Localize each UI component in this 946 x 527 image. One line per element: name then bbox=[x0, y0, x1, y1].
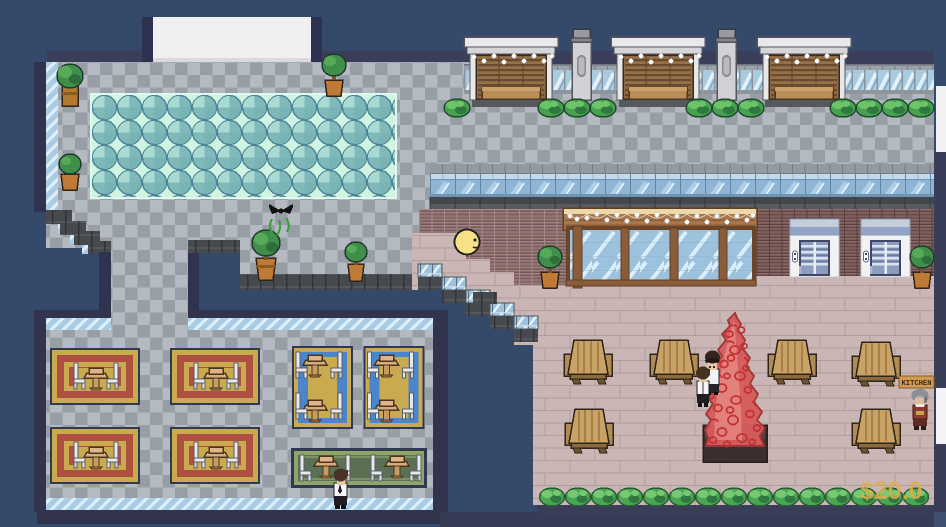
svg-text:KITCHEN: KITCHEN bbox=[902, 380, 932, 388]
svg-text:$20.0: $20.0 bbox=[860, 477, 923, 505]
